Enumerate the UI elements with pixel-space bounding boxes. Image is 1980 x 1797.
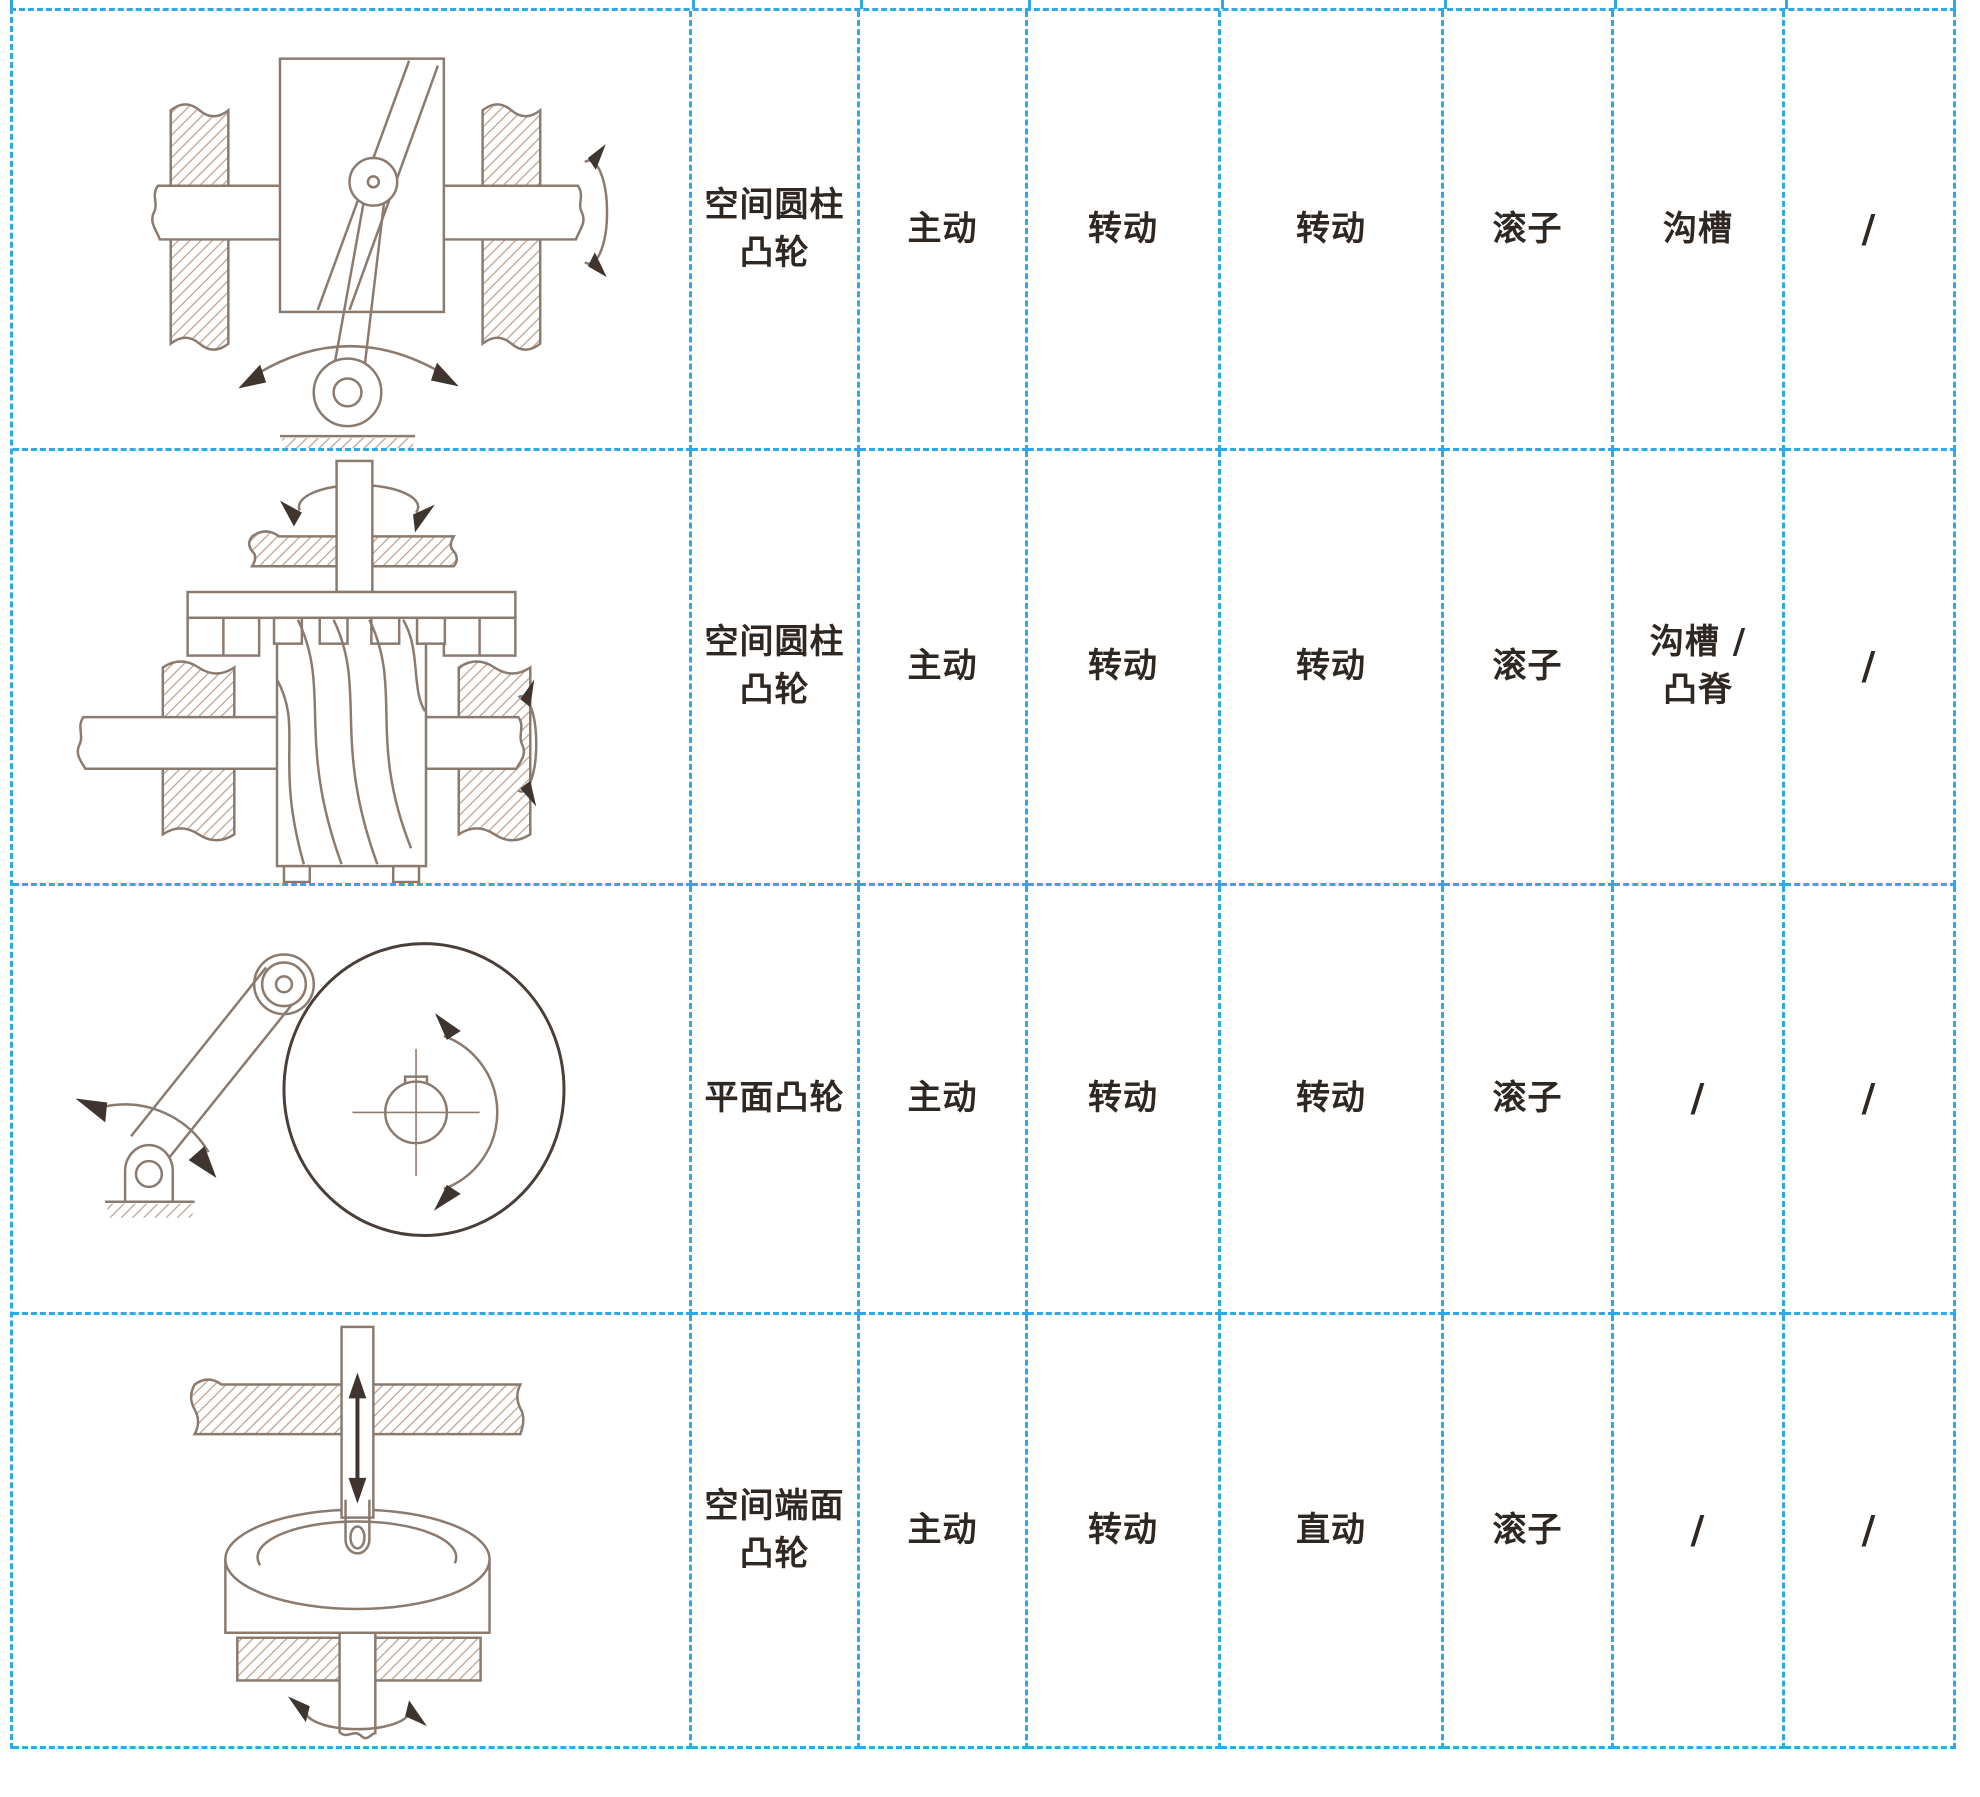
value-cell-row4-col6: /: [1785, 1315, 1956, 1749]
name-cell-row1: 空间圆柱 凸轮: [692, 11, 860, 451]
value-cell-row1-col1: 主动: [860, 11, 1028, 451]
drawing-cell-row2: [13, 451, 692, 886]
value-cell-row1-col4: 滚子: [1444, 11, 1614, 451]
value-cell-row2-col6: /: [1785, 451, 1956, 886]
name-cell-row4: 空间端面 凸轮: [692, 1315, 860, 1749]
value-cell-row4-col4: 滚子: [1444, 1315, 1614, 1749]
value-cell-row1-col5: 沟槽: [1614, 11, 1785, 451]
value-cell-row1-col2: 转动: [1028, 11, 1221, 451]
value-cell-row3-col1: 主动: [860, 886, 1028, 1315]
value-cell-row2-col4: 滚子: [1444, 451, 1614, 886]
value-cell-row2-col2: 转动: [1028, 451, 1221, 886]
spatial-end-face-cam-diagram: [13, 1315, 689, 1746]
value-cell-row1-col6: /: [1785, 11, 1956, 451]
value-cell-row3-col2: 转动: [1028, 886, 1221, 1315]
value-cell-row4-col1: 主动: [860, 1315, 1028, 1749]
drawing-cell-row3: [13, 886, 692, 1315]
cam-mechanism-table: 空间圆柱 凸轮 主动 转动 转动 滚子 沟槽 /: [10, 8, 1956, 1749]
spatial-cylindrical-cam-oscillating-follower-diagram: [13, 11, 689, 448]
value-cell-row2-col3: 转动: [1221, 451, 1444, 886]
page: 空间圆柱 凸轮 主动 转动 转动 滚子 沟槽 /: [0, 0, 1980, 1797]
value-cell-row3-col6: /: [1785, 886, 1956, 1315]
drawing-cell-row4: [13, 1315, 692, 1749]
drawing-cell-row1: [13, 11, 692, 451]
value-cell-row3-col5: /: [1614, 886, 1785, 1315]
value-cell-row4-col5: /: [1614, 1315, 1785, 1749]
name-cell-row3: 平面凸轮: [692, 886, 860, 1315]
value-cell-row2-col5: 沟槽 / 凸脊: [1614, 451, 1785, 886]
value-cell-row3-col4: 滚子: [1444, 886, 1614, 1315]
spatial-cylindrical-cam-helical-groove-diagram: [13, 451, 689, 883]
value-cell-row2-col1: 主动: [860, 451, 1028, 886]
value-cell-row4-col3: 直动: [1221, 1315, 1444, 1749]
planar-disc-cam-oscillating-follower-diagram: [13, 886, 689, 1312]
name-cell-row2: 空间圆柱 凸轮: [692, 451, 860, 886]
value-cell-row4-col2: 转动: [1028, 1315, 1221, 1749]
value-cell-row1-col3: 转动: [1221, 11, 1444, 451]
value-cell-row3-col3: 转动: [1221, 886, 1444, 1315]
